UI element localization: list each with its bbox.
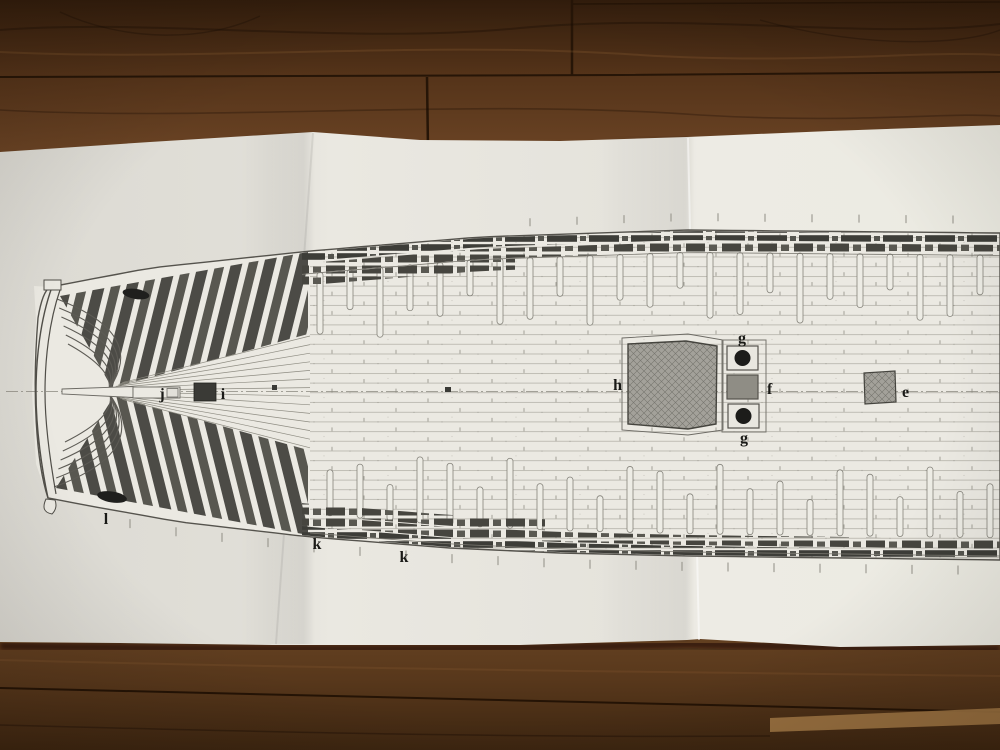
label-j: j	[158, 386, 164, 403]
pump-tube-bottom	[736, 408, 752, 424]
mast-partner-e-crosshatch	[864, 371, 896, 404]
wood-joint	[427, 77, 428, 150]
label-f: f	[767, 381, 773, 398]
label-e: e	[902, 384, 909, 401]
label-l: l	[104, 511, 109, 528]
label-g-top: g	[738, 330, 746, 347]
label-g-bottom: g	[740, 430, 748, 447]
scene-canvas: h g f g e i j k k l	[0, 0, 1000, 750]
small-hatch-f	[727, 375, 758, 399]
label-h: h	[613, 377, 622, 394]
label-k-aft: k	[400, 549, 409, 566]
label-k-fore: k	[313, 536, 322, 553]
mast-step-j	[167, 389, 178, 398]
gripe	[44, 499, 56, 514]
mast-step-i	[194, 383, 216, 401]
centerline-fitting	[445, 387, 451, 392]
stem-head	[44, 280, 61, 290]
centerline-fitting	[272, 385, 277, 390]
main-hatch-crosshatch	[628, 341, 717, 429]
photo-of-ship-plan: h g f g e i j k k l	[0, 0, 1000, 750]
label-i: i	[221, 386, 226, 403]
pump-tube-top	[735, 350, 751, 366]
